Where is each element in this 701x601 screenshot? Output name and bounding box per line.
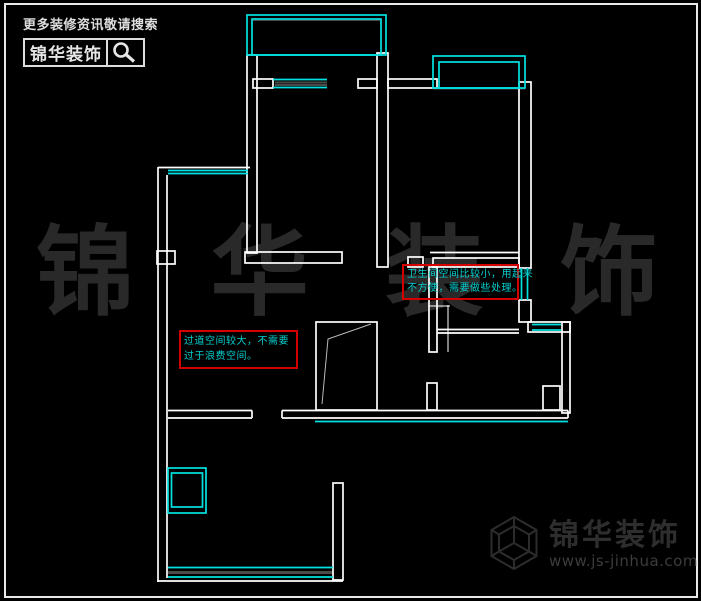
search-icon <box>108 41 140 64</box>
annotation-line: 卫生间空间比较小，用起来 <box>407 268 515 282</box>
screenshot-root: 锦 华 装 饰 <box>0 0 701 601</box>
header-branding: 更多装修资讯敬请搜索 锦华装饰 <box>23 14 158 67</box>
footer-url: www.js-jinhua.com <box>549 552 698 570</box>
cube-logo-icon <box>487 516 541 574</box>
wall-lines <box>157 53 570 582</box>
floor-plan-drawing <box>0 0 701 601</box>
footer-text: 锦华装饰 www.js-jinhua.com <box>549 521 698 570</box>
brand-name: 锦华装饰 <box>25 40 106 65</box>
annotation-line: 过道空间较大，不需要 <box>184 334 294 349</box>
brand-search-box: 锦华装饰 <box>23 38 145 67</box>
search-hint-text: 更多装修资讯敬请搜索 <box>23 14 158 33</box>
annotation-line: 不方便，需要做些处理。 <box>407 282 515 296</box>
annotation-hallway: 过道空间较大，不需要 过于浪费空间。 <box>179 330 298 369</box>
door-swing-line <box>322 324 371 404</box>
footer-brand-name: 锦华装饰 <box>549 521 698 551</box>
footer-branding: 锦华装饰 www.js-jinhua.com <box>487 516 698 574</box>
annotation-bathroom: 卫生间空间比较小，用起来 不方便，需要做些处理。 <box>402 264 519 300</box>
annotation-line: 过于浪费空间。 <box>184 349 294 364</box>
